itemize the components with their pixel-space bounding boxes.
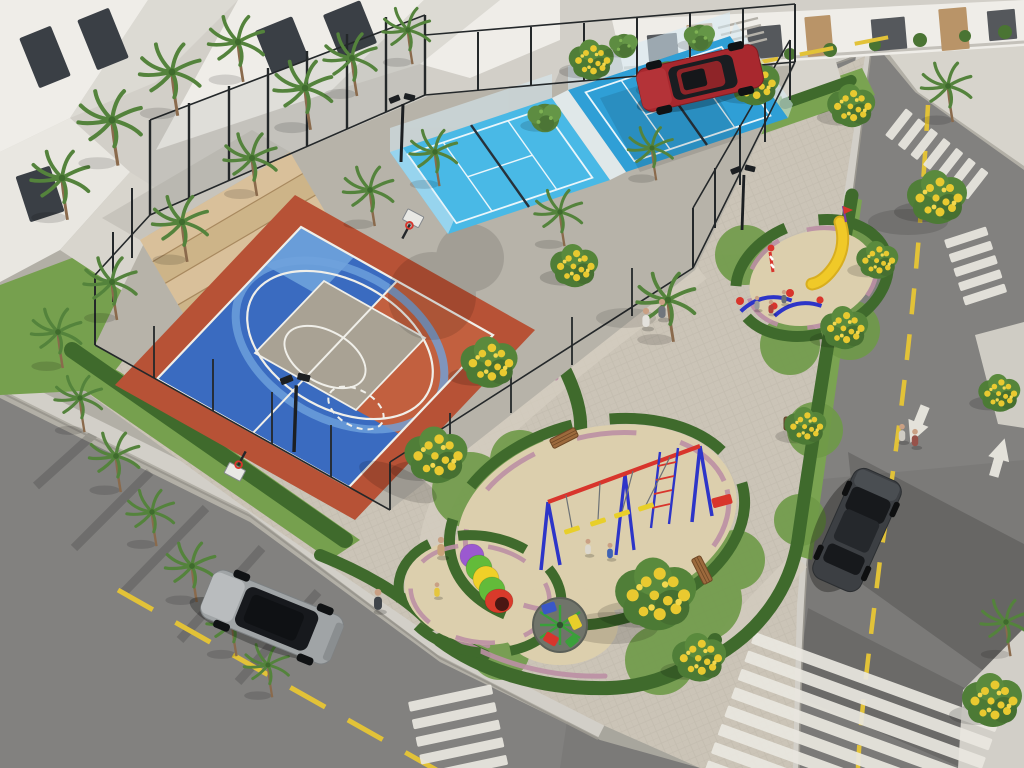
- community-park-rendering: [0, 0, 1024, 768]
- spinner-carousel: [533, 598, 587, 652]
- rendering-canvas: [0, 0, 1024, 768]
